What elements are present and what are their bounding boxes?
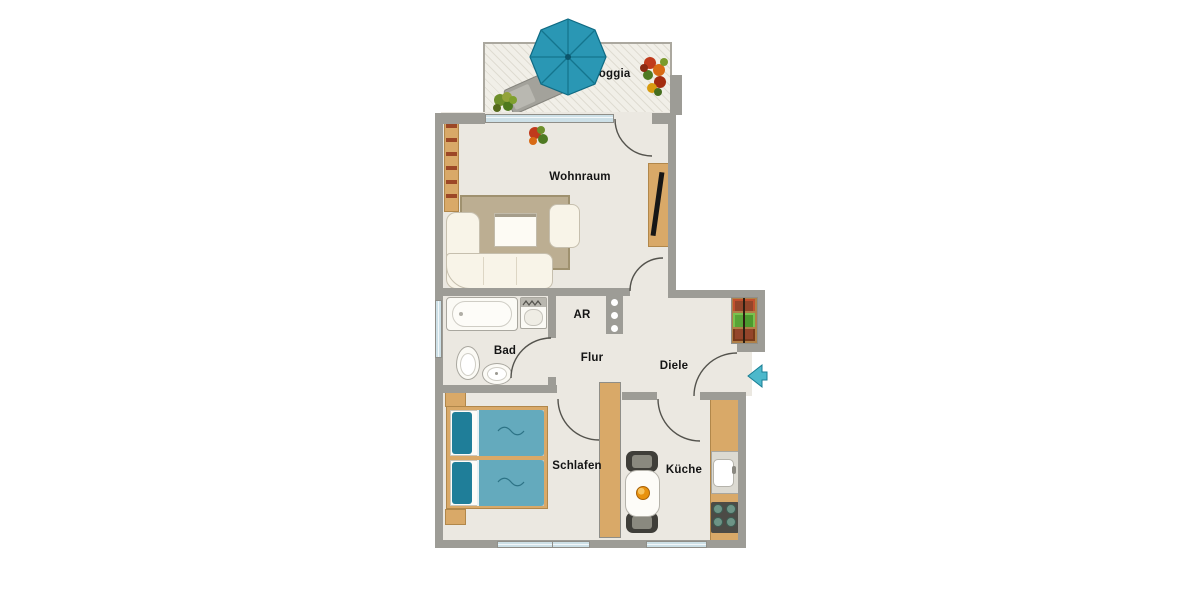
- burner: [726, 517, 736, 527]
- bed-blanket: [477, 460, 544, 506]
- coat-hook: [611, 312, 618, 319]
- burner: [726, 504, 736, 514]
- potted-plant: [745, 313, 755, 327]
- chair-seat: [632, 455, 652, 468]
- sun-lounger-backrest: [508, 84, 536, 110]
- wall: [737, 344, 765, 352]
- coffee-table: [494, 213, 537, 247]
- coat-hook: [611, 325, 618, 332]
- bathroom-window: [435, 300, 442, 358]
- floor-plan: Loggia Wohnraum Bad AR Flur Diele Schlaf…: [0, 0, 1200, 600]
- sofa-seam: [516, 257, 517, 285]
- toilet-bowl: [460, 353, 476, 376]
- burner: [713, 517, 723, 527]
- wall: [670, 75, 682, 115]
- fruit-bowl: [636, 486, 650, 500]
- chair-seat: [632, 516, 652, 529]
- burner: [713, 504, 723, 514]
- faucet: [732, 466, 736, 474]
- floor-balcony-door: [613, 112, 653, 125]
- wall: [738, 392, 746, 548]
- kitchen-window: [646, 541, 707, 548]
- wall: [435, 385, 557, 393]
- room-label-schlafen: Schlafen: [552, 460, 602, 472]
- nightstand: [445, 509, 466, 525]
- potted-plant: [733, 299, 743, 311]
- room-label-wohnraum: Wohnraum: [549, 171, 610, 183]
- room-label-kueche: Küche: [666, 464, 702, 476]
- wall: [668, 113, 676, 296]
- coat-hook: [611, 299, 618, 306]
- bed-pillow: [452, 412, 472, 454]
- bedroom-window: [497, 541, 553, 548]
- room-label-loggia: Loggia: [592, 68, 631, 80]
- bathtub-drain: [459, 312, 463, 316]
- balcony-window: [485, 114, 614, 123]
- room-label-ar: AR: [573, 309, 590, 321]
- bedroom-window: [552, 541, 590, 548]
- potted-plant: [745, 299, 755, 311]
- armchair: [549, 204, 580, 248]
- nightstand: [445, 391, 466, 407]
- wall: [622, 392, 657, 400]
- kitchen-sink-basin: [713, 459, 734, 487]
- wardrobe: [599, 382, 621, 538]
- wall: [435, 288, 630, 296]
- wash-basin-drain: [495, 372, 498, 375]
- room-label-diele: Diele: [660, 360, 689, 372]
- room-label-flur: Flur: [581, 352, 604, 364]
- potted-plant: [745, 329, 755, 341]
- wall: [548, 288, 556, 338]
- bed-pillow: [452, 462, 472, 504]
- room-label-bad: Bad: [494, 345, 516, 357]
- washing-machine-drum: [524, 309, 543, 326]
- washing-machine-panel: [521, 298, 546, 307]
- plant-shelf-divider: [743, 298, 745, 343]
- bookshelf-books: [446, 124, 457, 208]
- sofa-seat: [446, 253, 553, 289]
- bed-blanket: [477, 410, 544, 456]
- wall: [757, 290, 765, 352]
- potted-plant: [733, 313, 743, 327]
- sofa-seam: [483, 257, 484, 285]
- potted-plant: [733, 329, 743, 341]
